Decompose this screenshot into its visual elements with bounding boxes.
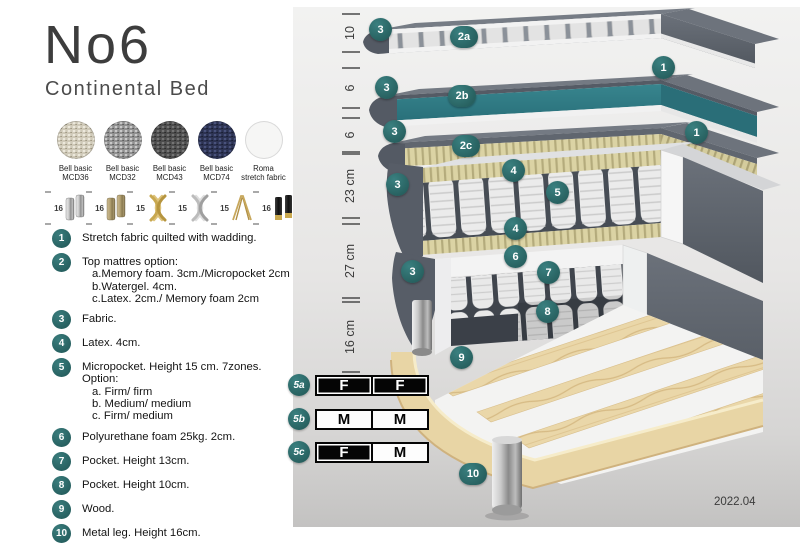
legend-item: 7 Pocket. Height 13cm. (52, 452, 294, 471)
legend-number-badge: 8 (52, 476, 71, 495)
chrome-cylinder-leg-icon (64, 193, 86, 223)
leg-option: 15 (176, 193, 211, 223)
leg-height-label: 16 (93, 204, 104, 213)
callout-marker: 5 (546, 181, 569, 204)
firmness-cell: M (371, 411, 427, 428)
leg-option: 15 (218, 193, 253, 223)
legend-number-badge: 9 (52, 500, 71, 519)
title-block: No6 Continental Bed (44, 16, 210, 101)
callout-marker: 8 (536, 300, 559, 323)
product-title: No6 (44, 16, 210, 74)
legend-subtext: b. Medium/ medium (92, 398, 294, 410)
fabric-swatch: Bell basicMCD32 (99, 121, 146, 182)
callout-marker: 1 (652, 56, 675, 79)
version-label: 2022.04 (714, 496, 756, 508)
callout-marker: 3 (369, 18, 392, 41)
firmness-cell: F (371, 377, 427, 394)
swatch-code: MCD74 (200, 173, 233, 182)
dim-label: 16 cm (343, 320, 357, 354)
leg-options-row: 16 16 15 15 (45, 186, 301, 230)
legend-item: 8 Pocket. Height 10cm. (52, 476, 294, 495)
leg-height-label: 16 (52, 204, 63, 213)
gold-cross-leg-icon (146, 193, 169, 223)
swatch-name: Bell basic (59, 164, 92, 173)
legend-item: 6 Polyurethane foam 25kg. 2cm. (52, 428, 294, 447)
firmness-cell: F (317, 444, 371, 461)
swatch-name: Bell basic (153, 164, 186, 173)
fabric-swatch-circle (198, 121, 236, 159)
fabric-swatch-row: Bell basicMCD36 Bell basicMCD32 Bell bas… (52, 121, 287, 182)
divider-marks (169, 188, 176, 228)
callout-marker: 2b (448, 85, 476, 107)
legend-item: 2 Top mattres option: a.Memory foam. 3cm… (52, 253, 294, 305)
callout-marker: 3 (375, 76, 398, 99)
callout-marker: 4 (502, 159, 525, 182)
divider-marks (253, 188, 260, 228)
firmness-cells: F F (315, 375, 429, 396)
firmness-row-5c: 5c F M (288, 441, 429, 463)
legend-number-badge: 3 (52, 310, 71, 329)
legend-number-badge: 2 (52, 253, 71, 272)
leg-height-label: 15 (176, 204, 187, 213)
legend-item: 4 Latex. 4cm. (52, 334, 294, 353)
legend-subtext: c. Firm/ medium (92, 410, 294, 422)
legend-number-badge: 7 (52, 452, 71, 471)
legend-number-badge: 4 (52, 334, 71, 353)
silver-cross-leg-icon (188, 193, 211, 223)
divider-marks (127, 188, 134, 228)
fabric-swatch: Romastretch fabric (240, 121, 287, 182)
callout-marker: 10 (459, 463, 487, 485)
firmness-cell: M (317, 411, 371, 428)
fabric-swatch-circle (245, 121, 283, 159)
divider-marks (45, 188, 52, 228)
legend-text: Stretch fabric quilted with wadding. (82, 232, 257, 244)
callout-marker: 3 (383, 120, 406, 143)
callout-marker: 7 (537, 261, 560, 284)
legend-subtext: b.Watergel. 4cm. (92, 281, 290, 293)
legend-item: 5 Micropocket. Height 15 cm. 7zones. Opt… (52, 358, 294, 422)
legend-item: 10 Metal leg. Height 16cm. (52, 524, 294, 543)
dim-label: 23 cm (343, 169, 357, 203)
legend-number-badge: 10 (52, 524, 71, 543)
legend-item: 3 Fabric. (52, 310, 294, 329)
swatch-code: MCD36 (59, 173, 92, 182)
firmness-cell: M (371, 444, 427, 461)
swatch-code: MCD32 (106, 173, 139, 182)
firmness-option-badge: 5a (288, 374, 310, 396)
legend-text: Micropocket. Height 15 cm. 7zones. Optio… (82, 361, 294, 386)
firmness-cell: F (317, 377, 371, 394)
bed-cutaway-diagram: 10 6 6 23 cm 27 cm 16 cm (293, 0, 800, 533)
callout-marker: 3 (401, 260, 424, 283)
firmness-row-5b: 5b M M (288, 408, 429, 430)
legend-number-badge: 1 (52, 229, 71, 248)
fabric-swatch-circle (151, 121, 189, 159)
leg-height-label: 16 (260, 204, 271, 213)
fabric-swatch-circle (104, 121, 142, 159)
legend-subtext: c.Latex. 2cm./ Memory foam 2cm (92, 293, 290, 305)
leg-height-label: 15 (218, 204, 229, 213)
dim-label: 6 (343, 131, 357, 138)
leg-option: 16 (93, 193, 127, 223)
legend-number-badge: 5 (52, 358, 71, 377)
fabric-swatch: Bell basicMCD74 (193, 121, 240, 182)
callout-marker: 2a (450, 26, 478, 48)
fabric-swatch: Bell basicMCD36 (52, 121, 99, 182)
leg-height-label: 15 (134, 204, 145, 213)
legend-text: Top mattres option: (82, 256, 290, 268)
dim-label: 6 (343, 84, 357, 91)
product-info-panel: No6 Continental Bed Bell basicMCD36 Bell… (0, 0, 295, 533)
callout-marker: 9 (450, 346, 473, 369)
legend-text: Fabric. (82, 313, 117, 325)
legend-text: Latex. 4cm. (82, 337, 140, 349)
front-leg (492, 438, 522, 510)
firmness-row-5a: 5a F F (288, 374, 429, 396)
fabric-swatch-circle (57, 121, 95, 159)
leg-option: 15 (134, 193, 169, 223)
leg-option: 16 (260, 193, 294, 223)
swatch-code: stretch fabric (241, 173, 286, 182)
divider-marks (211, 188, 218, 228)
dim-label: 10 (343, 26, 357, 40)
swatch-name: Bell basic (106, 164, 139, 173)
back-left-leg (412, 300, 432, 352)
callout-marker: 1 (685, 121, 708, 144)
legend-text: Wood. (82, 503, 114, 515)
swatch-code: MCD43 (153, 173, 186, 182)
dim-label: 27 cm (343, 244, 357, 278)
gold-hairpin-leg-icon (230, 193, 253, 223)
product-subtitle: Continental Bed (45, 78, 210, 101)
swatch-name: Bell basic (200, 164, 233, 173)
callout-marker: 4 (504, 217, 527, 240)
firmness-option-badge: 5b (288, 408, 310, 430)
firmness-cells: M M (315, 409, 429, 430)
bronze-cylinder-leg-icon (105, 193, 127, 223)
swatch-name: Roma (241, 164, 286, 173)
firmness-option-badge: 5c (288, 441, 310, 463)
fabric-swatch: Bell basicMCD43 (146, 121, 193, 182)
legend-list: 1 Stretch fabric quilted with wadding. 2… (52, 229, 294, 548)
legend-text: Pocket. Height 10cm. (82, 479, 189, 491)
firmness-cells: F M (315, 442, 429, 463)
legend-text: Pocket. Height 13cm. (82, 455, 189, 467)
legend-text: Polyurethane foam 25kg. 2cm. (82, 431, 235, 443)
callout-marker: 6 (504, 245, 527, 268)
leg-option: 16 (52, 193, 86, 223)
black-gold-cylinder-leg-icon (272, 193, 294, 223)
legend-number-badge: 6 (52, 428, 71, 447)
callout-marker: 2c (452, 135, 480, 157)
legend-subtext: a. Firm/ firm (92, 386, 294, 398)
divider-marks (86, 188, 93, 228)
legend-subtext: a.Memory foam. 3cm./Micropocket 2cm (92, 268, 290, 280)
legend-item: 1 Stretch fabric quilted with wadding. (52, 229, 294, 248)
legend-item: 9 Wood. (52, 500, 294, 519)
callout-marker: 3 (386, 173, 409, 196)
